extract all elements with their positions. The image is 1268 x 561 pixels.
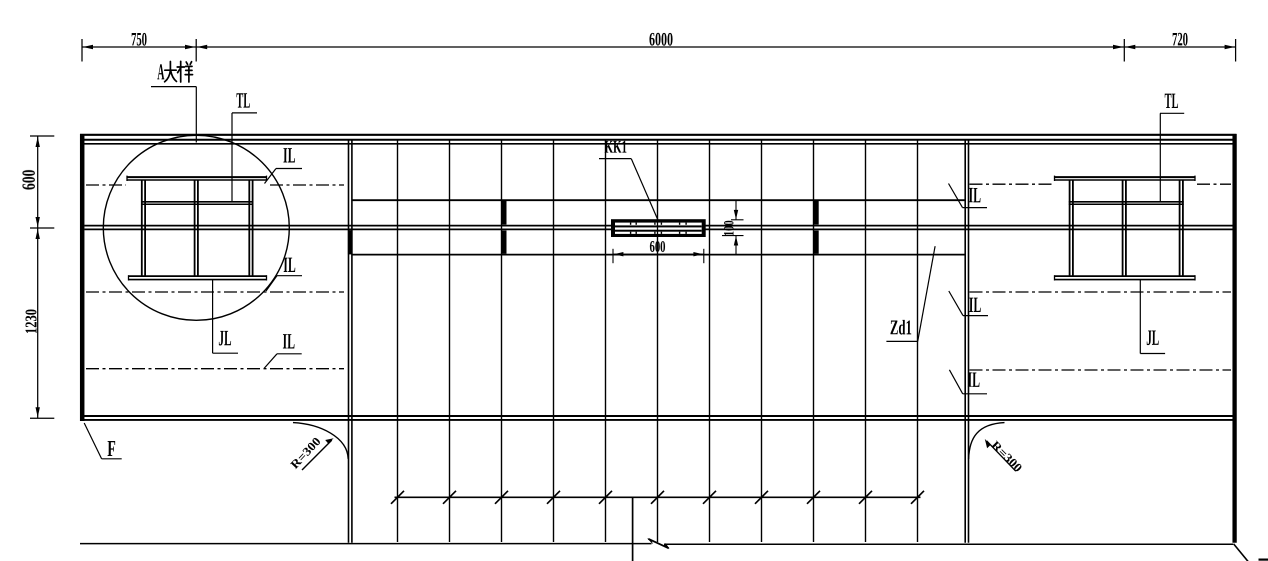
- svg-text:IL: IL: [967, 367, 980, 392]
- svg-text:600: 600: [649, 237, 665, 256]
- svg-text:6000: 6000: [649, 29, 673, 50]
- svg-text:IL: IL: [969, 292, 982, 317]
- svg-text:KK1: KK1: [604, 137, 627, 157]
- svg-text:IL: IL: [968, 182, 981, 207]
- svg-text:1230: 1230: [21, 309, 40, 334]
- svg-text:600: 600: [19, 170, 40, 191]
- svg-text:A: A: [157, 59, 164, 84]
- svg-text:TL: TL: [1164, 88, 1178, 113]
- svg-text:IL: IL: [283, 143, 296, 168]
- svg-text:IL: IL: [282, 329, 295, 354]
- svg-text:IL: IL: [283, 252, 296, 277]
- svg-text:TL: TL: [236, 88, 250, 113]
- svg-text:JL: JL: [218, 325, 231, 350]
- svg-text:750: 750: [131, 29, 147, 50]
- svg-text:JL: JL: [1146, 325, 1159, 350]
- svg-text:100: 100: [722, 220, 738, 236]
- svg-text:Zd1: Zd1: [890, 315, 912, 339]
- svg-text:F: F: [107, 436, 116, 461]
- svg-text:720: 720: [1172, 29, 1188, 50]
